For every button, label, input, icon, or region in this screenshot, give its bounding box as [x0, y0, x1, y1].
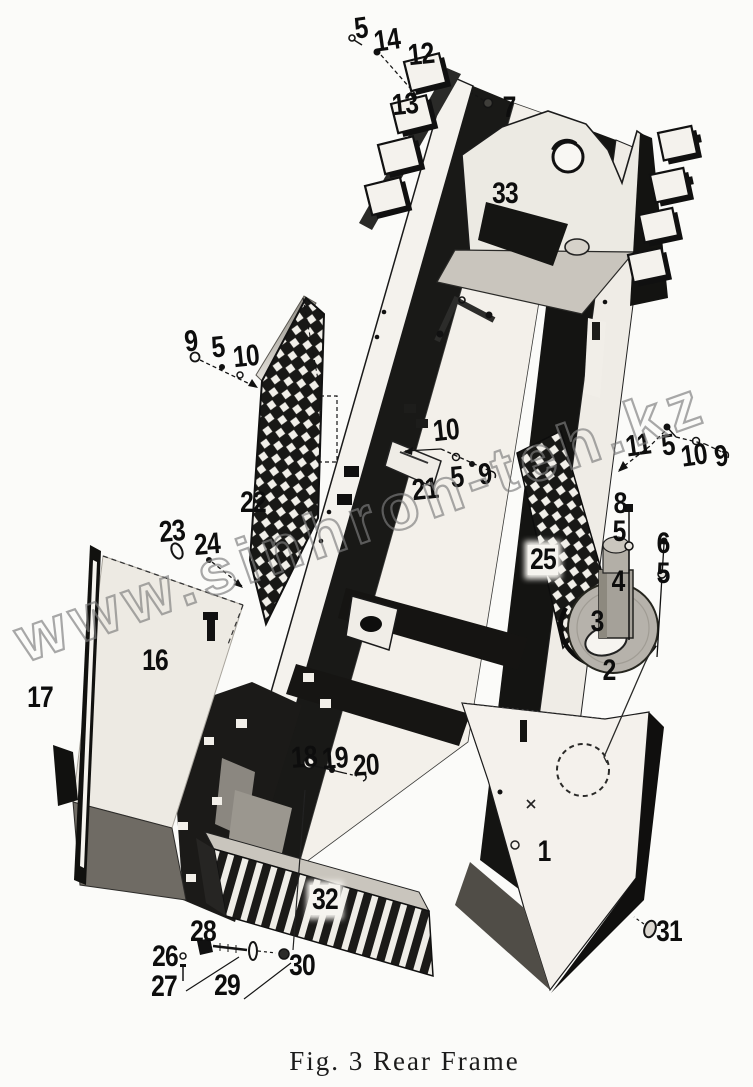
rear-frame-illustration [0, 0, 753, 1087]
bolt-icon-18 [304, 758, 315, 769]
washer-5b [658, 570, 666, 578]
bolt-icon-7 [484, 99, 493, 108]
screw-icon-27 [180, 964, 186, 967]
panel-corner-bolt [207, 617, 215, 641]
washer-icon-26 [180, 953, 186, 959]
figure-caption: Fig. 3 Rear Frame [28, 1046, 753, 1077]
pad-rail-right [628, 124, 705, 306]
bolt-8 [625, 504, 633, 512]
bolt-icon-28 [197, 938, 213, 955]
washer-icon [191, 353, 200, 362]
screw-icon [374, 49, 381, 56]
grommet-icon-31 [642, 919, 658, 939]
nut-icon-30 [279, 949, 289, 959]
washer-5 [625, 542, 633, 550]
washer-icon-29 [249, 942, 257, 960]
clip-icon-23 [169, 542, 185, 561]
bolt-icon-24 [206, 557, 212, 563]
figure-page: 5141213733951010215911510985654322522232… [0, 0, 753, 1087]
bolt-6 [661, 538, 668, 545]
